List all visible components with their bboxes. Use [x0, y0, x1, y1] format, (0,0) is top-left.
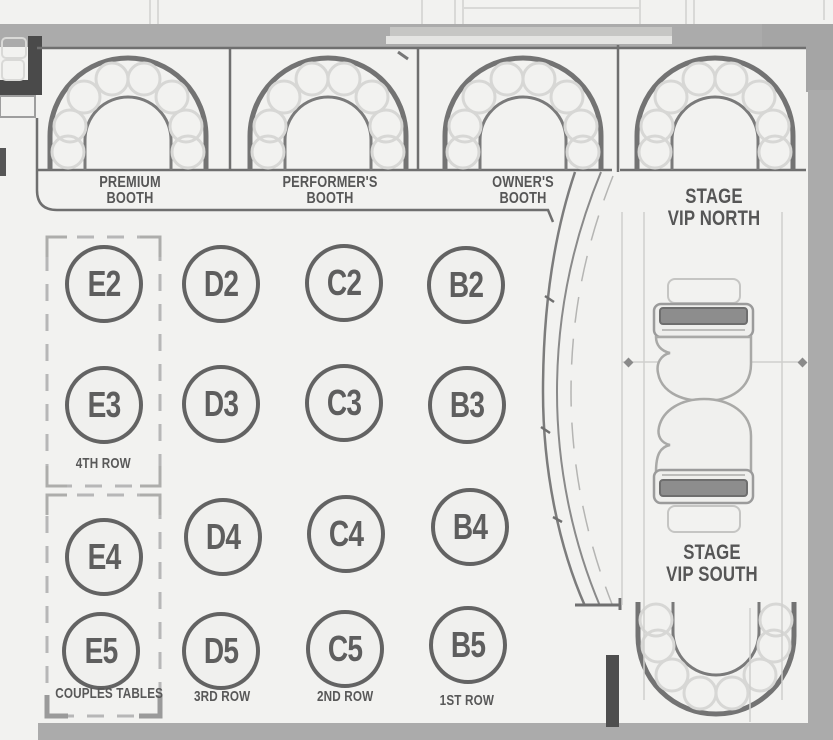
- table-label: E2: [88, 263, 121, 305]
- table-label: C4: [329, 513, 363, 555]
- row-label-first-row: 1ST ROW: [407, 692, 527, 709]
- table-label: E3: [88, 384, 121, 426]
- table-label: C5: [328, 628, 362, 670]
- table-C5[interactable]: C5: [306, 610, 384, 688]
- stage-furniture: [654, 279, 753, 532]
- table-label: D4: [206, 516, 240, 558]
- left-door-notch: [0, 96, 35, 176]
- table-E2[interactable]: E2: [65, 245, 143, 323]
- table-B3[interactable]: B3: [428, 366, 506, 444]
- table-D2[interactable]: D2: [182, 245, 260, 323]
- table-label: D3: [204, 383, 238, 425]
- table-label: E4: [88, 536, 121, 578]
- stage-vip-south[interactable]: STAGE VIP SOUTH: [632, 542, 792, 600]
- row-label-couples-tables: COUPLES TABLES: [40, 685, 166, 702]
- table-B2[interactable]: B2: [427, 246, 505, 324]
- table-D3[interactable]: D3: [182, 365, 260, 443]
- stage-vip-south-label: STAGE VIP SOUTH: [648, 542, 776, 586]
- table-D5[interactable]: D5: [182, 612, 260, 690]
- table-C4[interactable]: C4: [307, 495, 385, 573]
- table-label: E5: [85, 630, 118, 672]
- table-label: C2: [327, 262, 361, 304]
- owners-booth[interactable]: OWNER'S BOOTH: [445, 52, 601, 208]
- table-label: D2: [204, 263, 238, 305]
- upper-rooms-outline: [150, 0, 824, 26]
- table-label: D5: [204, 630, 238, 672]
- table-label: C3: [327, 382, 361, 424]
- table-B4[interactable]: B4: [431, 488, 509, 566]
- table-C2[interactable]: C2: [305, 244, 383, 322]
- premium-booth[interactable]: PREMIUM BOOTH: [52, 52, 208, 208]
- table-E4[interactable]: E4: [65, 518, 143, 596]
- stage-vip-north[interactable]: STAGE VIP NORTH: [634, 52, 794, 230]
- table-B5[interactable]: B5: [429, 606, 507, 684]
- table-label: B3: [450, 384, 484, 426]
- table-D4[interactable]: D4: [184, 498, 262, 576]
- row-label-fourth-row: 4TH ROW: [46, 455, 160, 472]
- right-corridor-band: [808, 90, 833, 723]
- performers-booth[interactable]: PERFORMER'S BOOTH: [252, 52, 408, 208]
- performers-booth-label: PERFORMER'S BOOTH: [268, 175, 393, 208]
- bottom-corridor-band: [38, 723, 833, 740]
- row-label-third-row: 3RD ROW: [162, 688, 282, 705]
- south-dark-pillar: [606, 655, 619, 727]
- premium-booth-label: PREMIUM BOOTH: [68, 175, 193, 208]
- table-label: B5: [451, 624, 485, 666]
- table-label: B4: [453, 506, 487, 548]
- table-C3[interactable]: C3: [305, 364, 383, 442]
- owners-booth-label: OWNER'S BOOTH: [461, 175, 586, 208]
- row-label-second-row: 2ND ROW: [285, 688, 405, 705]
- table-label: B2: [449, 264, 483, 306]
- table-E5[interactable]: E5: [62, 612, 140, 690]
- stage-vip-north-label: STAGE VIP NORTH: [650, 186, 778, 230]
- venue-seating-map: PREMIUM BOOTH PERFORMER'S BOOTH OWNER'S …: [0, 0, 833, 740]
- table-E3[interactable]: E3: [65, 366, 143, 444]
- runway-arcs: [541, 172, 620, 610]
